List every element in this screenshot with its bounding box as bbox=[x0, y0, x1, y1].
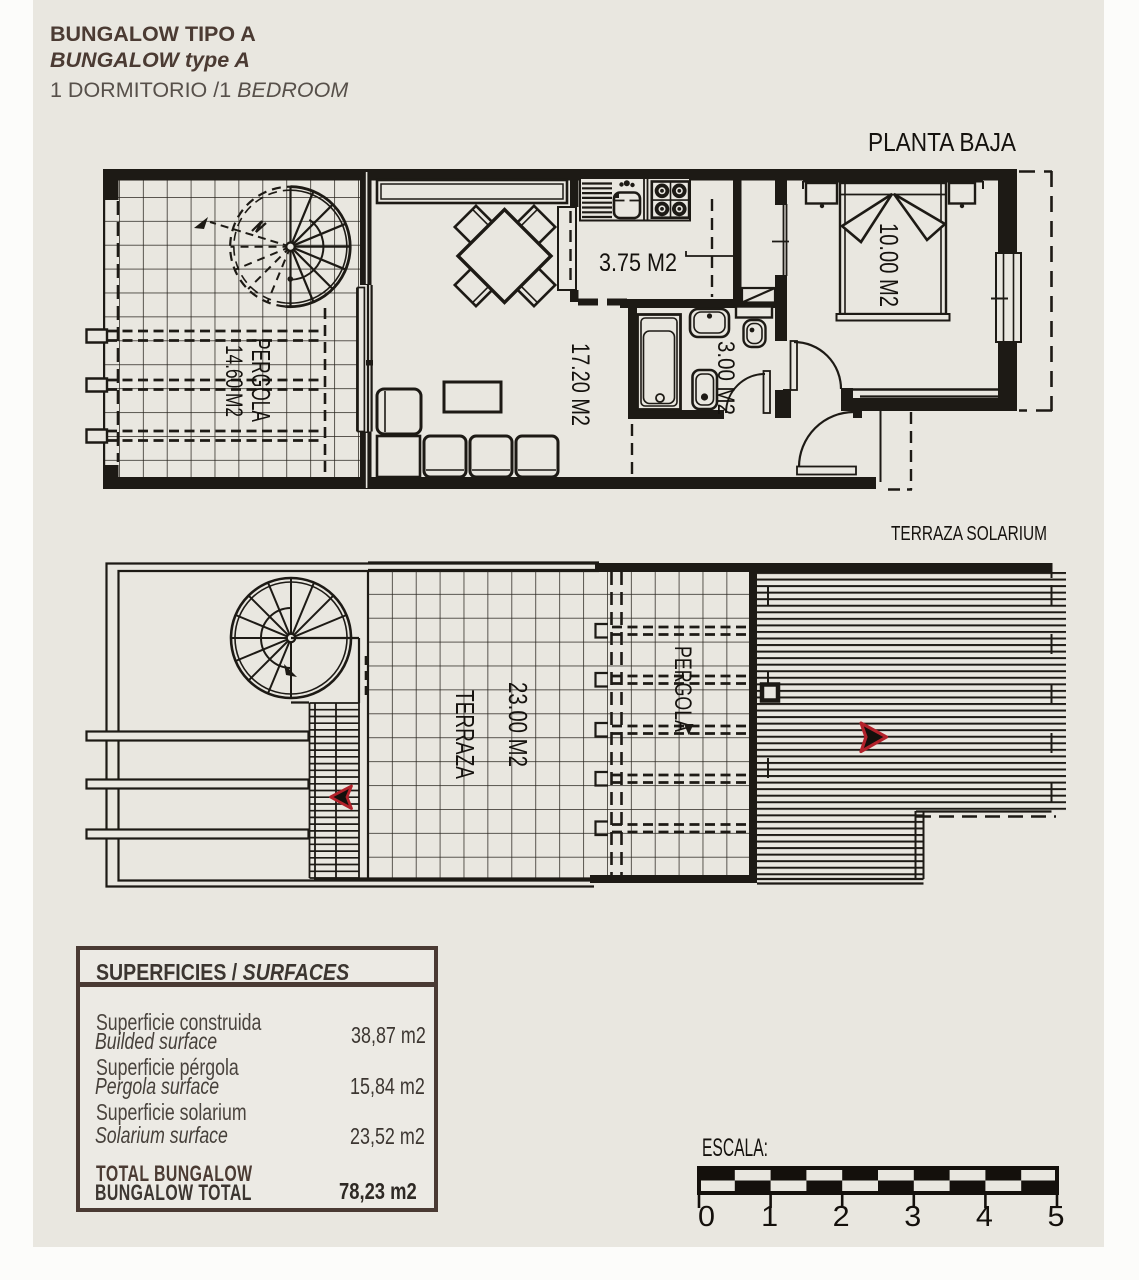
svg-text:0: 0 bbox=[698, 1201, 715, 1233]
svg-text:1: 1 bbox=[761, 1201, 778, 1233]
svg-text:PERGOLA: PERGOLA bbox=[669, 646, 696, 732]
svg-text:3.75 M2: 3.75 M2 bbox=[599, 249, 677, 277]
svg-text:14.60 M2: 14.60 M2 bbox=[220, 345, 247, 417]
svg-text:4: 4 bbox=[976, 1201, 993, 1233]
svg-text:PERGOLA: PERGOLA bbox=[246, 338, 276, 422]
svg-text:3.00 M2: 3.00 M2 bbox=[712, 341, 739, 415]
svg-text:TERRAZA SOLARIUM: TERRAZA SOLARIUM bbox=[891, 523, 1047, 545]
svg-text:PLANTA BAJA: PLANTA BAJA bbox=[868, 127, 1017, 157]
svg-text:TERRAZA: TERRAZA bbox=[450, 690, 480, 779]
svg-text:3: 3 bbox=[904, 1201, 921, 1233]
svg-text:ESCALA:: ESCALA: bbox=[702, 1134, 768, 1162]
svg-text:10.00 M2: 10.00 M2 bbox=[874, 223, 904, 307]
svg-text:5: 5 bbox=[1048, 1201, 1065, 1233]
svg-text:23.00 M2: 23.00 M2 bbox=[503, 682, 533, 767]
svg-text:17.20 M2: 17.20 M2 bbox=[566, 343, 594, 426]
svg-text:2: 2 bbox=[833, 1201, 850, 1233]
